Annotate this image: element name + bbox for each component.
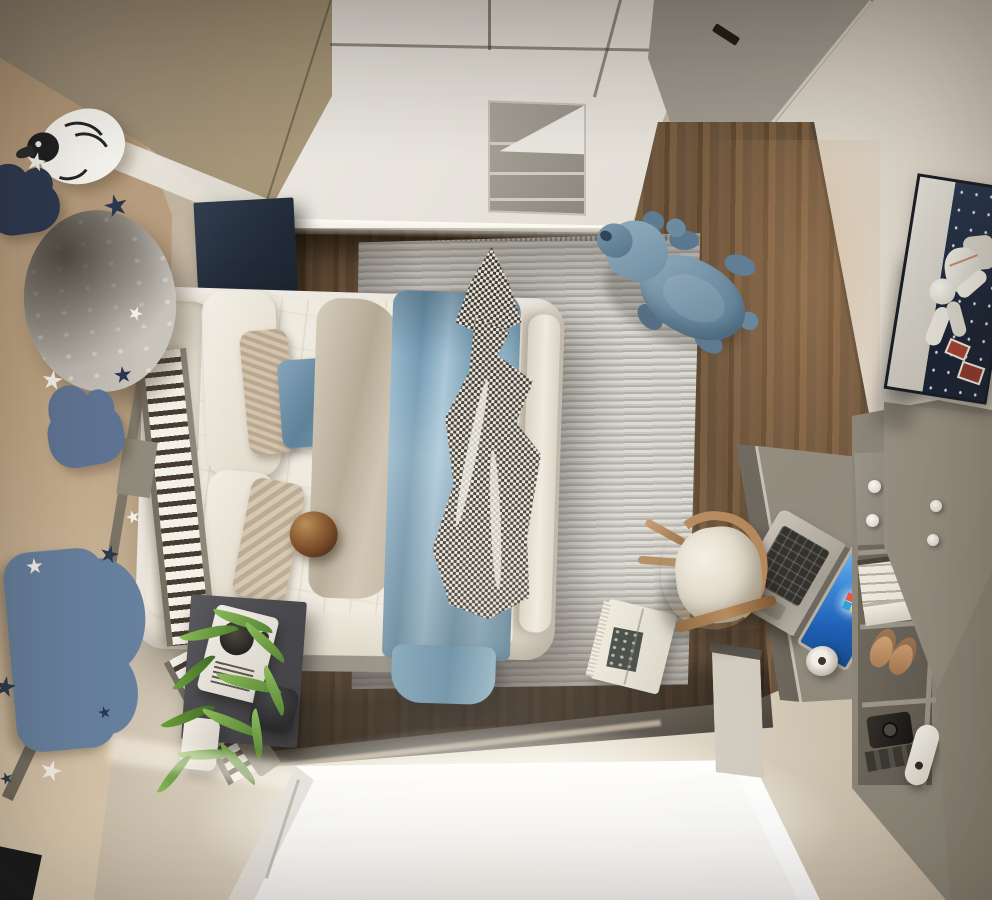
niche-shelf	[490, 198, 584, 201]
charger-dot	[817, 656, 826, 665]
shelf-knob	[930, 500, 942, 512]
camera	[866, 711, 914, 749]
plant-leaf	[172, 648, 215, 696]
room-render	[0, 0, 992, 900]
checker-fold-highlight	[488, 449, 503, 589]
camera-lens	[881, 721, 899, 739]
niche-cover-panel	[490, 102, 584, 213]
blanket-tongue	[390, 644, 496, 705]
niche-shelf	[490, 172, 584, 175]
bird-eye	[35, 141, 42, 148]
remote-dot	[914, 761, 924, 771]
shelf-knob	[868, 480, 881, 493]
cloud-decal-blue-large	[1, 546, 118, 754]
shelf-knob	[866, 514, 879, 527]
wardrobe-seam-vertical	[488, 0, 491, 50]
wardrobe-niche	[488, 100, 586, 215]
shelf-knob	[927, 534, 939, 546]
checker-fold-highlight	[452, 378, 492, 527]
chair	[633, 501, 782, 654]
